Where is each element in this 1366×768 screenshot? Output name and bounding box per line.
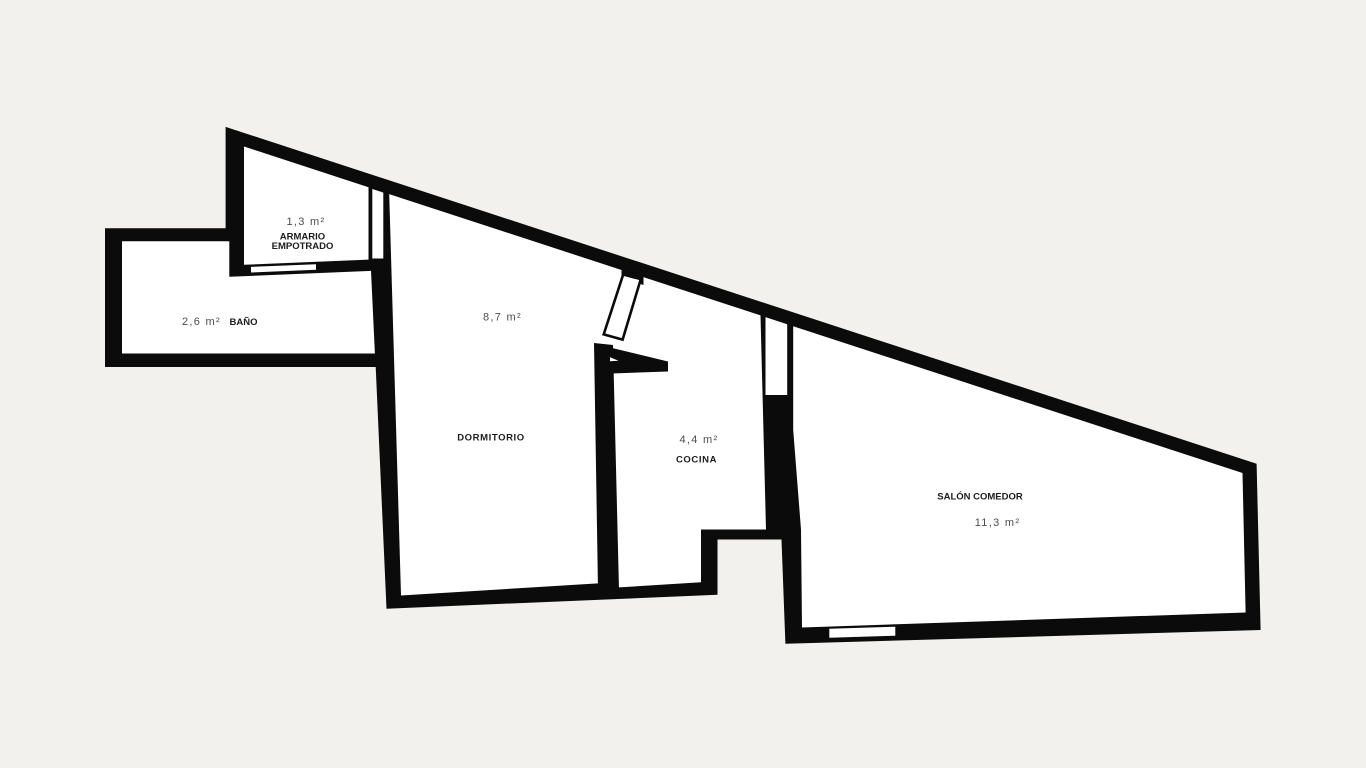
svg-text:2,6 m²: 2,6 m²: [182, 316, 221, 328]
svg-text:8,7 m²: 8,7 m²: [483, 312, 522, 324]
svg-text:11,3 m²: 11,3 m²: [975, 517, 1021, 529]
svg-text:SALÓN COMEDOR: SALÓN COMEDOR: [937, 491, 1023, 503]
svg-text:1,3 m²: 1,3 m²: [287, 216, 326, 228]
svg-text:DORMITORIO: DORMITORIO: [457, 433, 525, 444]
svg-text:4,4 m²: 4,4 m²: [680, 434, 719, 446]
svg-text:COCINA: COCINA: [676, 455, 717, 466]
svg-text:EMPOTRADO: EMPOTRADO: [272, 241, 334, 252]
svg-text:BAÑO: BAÑO: [230, 317, 258, 328]
